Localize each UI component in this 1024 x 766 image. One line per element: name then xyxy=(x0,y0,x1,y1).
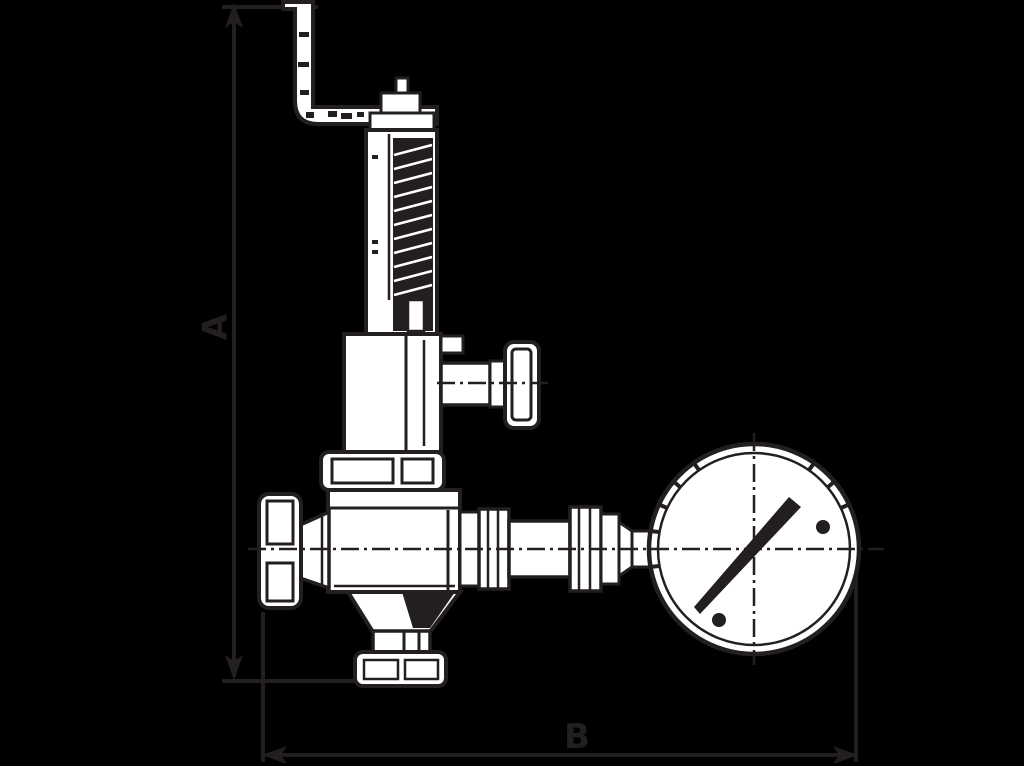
handwheel-slot-bottom xyxy=(267,563,293,601)
lever-mark xyxy=(298,62,309,67)
bonnet-mark xyxy=(372,240,378,244)
gauge-dial-dot-right xyxy=(816,520,830,534)
lever-mark xyxy=(341,113,352,119)
lever-mark xyxy=(328,111,337,117)
bottom-flange-inner-right xyxy=(405,660,438,679)
upper-body-block xyxy=(344,334,441,452)
lower-body-block xyxy=(328,490,460,592)
upper-body-step xyxy=(441,336,463,353)
shutoff-handwheel xyxy=(259,494,329,608)
bonnet-slot xyxy=(408,300,424,331)
flange-inner-right xyxy=(402,459,433,483)
lower-valve-body xyxy=(328,490,460,686)
lever-mark xyxy=(306,112,314,118)
bottom-flange-inner-left xyxy=(364,660,398,679)
lever-mark xyxy=(300,90,309,95)
dimension-a-label: A xyxy=(195,313,235,340)
lever-mark xyxy=(357,112,364,117)
technical-drawing: A B xyxy=(0,0,1024,766)
bonnet-mark xyxy=(372,250,378,254)
outlet-neck xyxy=(373,631,430,653)
bonnet-mark xyxy=(372,155,378,159)
cap-block xyxy=(381,93,420,114)
flange-inner-left xyxy=(332,459,393,483)
spring-bonnet xyxy=(366,130,437,334)
side-outlet xyxy=(441,342,539,428)
drawing-canvas: A B xyxy=(0,0,1024,766)
body-flange xyxy=(321,452,444,490)
lever-mark xyxy=(299,32,309,37)
gauge-dial-dot-left xyxy=(712,613,726,627)
outlet-knob-inner xyxy=(512,349,531,420)
dimension-b-label: B xyxy=(564,717,590,757)
handwheel-slot-top xyxy=(267,501,293,544)
